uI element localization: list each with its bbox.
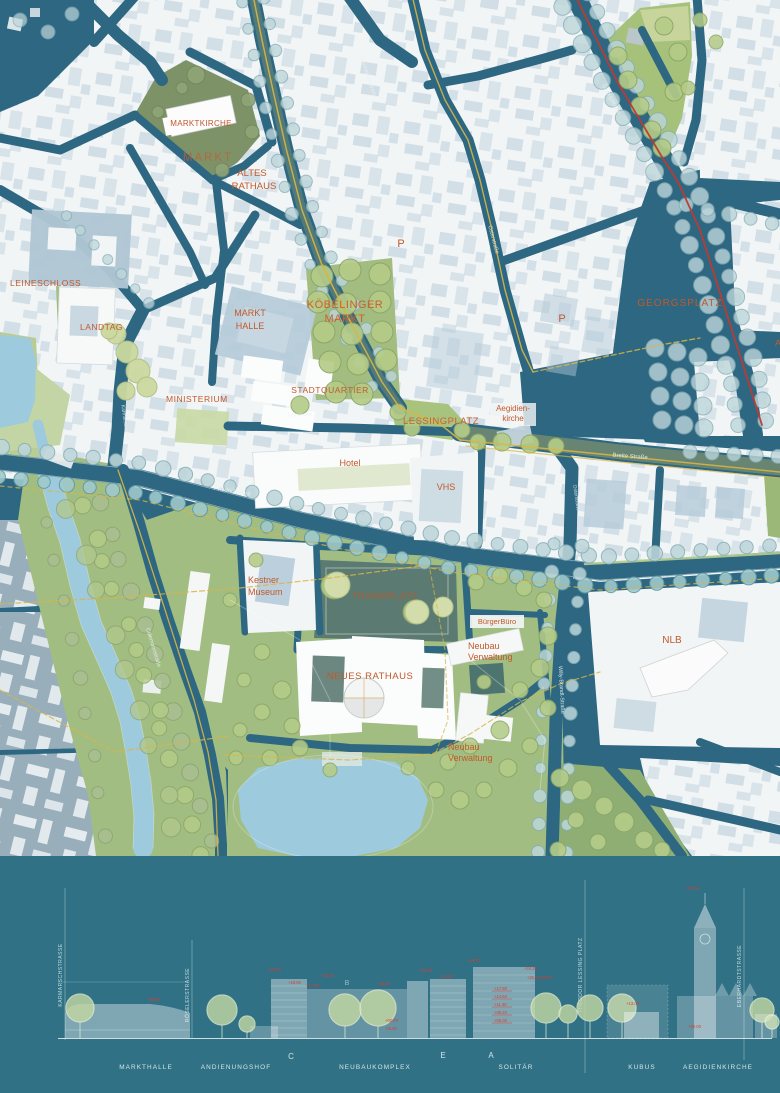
svg-text:HALLE: HALLE	[236, 321, 265, 331]
svg-text:+00.00: +00.00	[385, 1018, 399, 1023]
svg-text:LANDTAG: LANDTAG	[80, 322, 123, 332]
svg-text:LEINESCHLOSS: LEINESCHLOSS	[10, 278, 81, 288]
svg-text:NEUES RATHAUS: NEUES RATHAUS	[327, 671, 414, 682]
svg-text:Hotel: Hotel	[339, 458, 360, 468]
svg-text:+24.20: +24.20	[524, 966, 538, 971]
svg-text:MINISTERIUM: MINISTERIUM	[166, 394, 228, 404]
svg-text:+17.80: +17.80	[494, 986, 508, 991]
svg-text:A: A	[775, 338, 780, 348]
svg-text:KÖBELINGER: KÖBELINGER	[307, 299, 384, 311]
svg-text:+21.00: +21.00	[440, 974, 454, 979]
svg-text:C: C	[288, 1052, 294, 1061]
svg-text:+14.60: +14.60	[494, 994, 508, 999]
svg-text:B: B	[345, 980, 350, 987]
svg-text:VHS: VHS	[437, 482, 456, 492]
svg-text:+57.00: +57.00	[686, 886, 700, 891]
svg-text:AEGIDIENKIRCHE: AEGIDIENKIRCHE	[683, 1064, 753, 1071]
svg-text:NEUBAUKOMPLEX: NEUBAUKOMPLEX	[339, 1064, 411, 1071]
svg-text:KARMARSCHSTRASSE: KARMARSCHSTRASSE	[58, 943, 64, 1006]
svg-text:MARKTHALLE: MARKTHALLE	[119, 1064, 173, 1071]
svg-text:A: A	[488, 1051, 494, 1060]
svg-text:P: P	[558, 313, 565, 325]
svg-text:+22.00: +22.00	[321, 973, 335, 978]
svg-text:+00.00: +00.00	[688, 1024, 702, 1029]
svg-text:MARKTKIRCHE: MARKTKIRCHE	[170, 119, 232, 128]
svg-text:+18.80: +18.80	[288, 980, 302, 985]
svg-text:+21.00 OKFF: +21.00 OKFF	[527, 975, 553, 980]
svg-text:+05.00: +05.00	[494, 1018, 508, 1023]
svg-text:Verwaltung: Verwaltung	[448, 753, 493, 763]
svg-text:+13.00: +13.00	[626, 1001, 640, 1006]
svg-text:NLB: NLB	[662, 635, 682, 646]
svg-text:MARKT: MARKT	[234, 308, 266, 318]
svg-text:kirche: kirche	[502, 414, 524, 423]
svg-text:KUBUS: KUBUS	[628, 1064, 656, 1071]
svg-text:+18.80: +18.80	[377, 981, 391, 986]
svg-text:Verwaltung: Verwaltung	[468, 652, 513, 662]
svg-text:LESSINGPLATZ: LESSINGPLATZ	[403, 416, 479, 427]
svg-text:Aegidien-: Aegidien-	[496, 404, 530, 413]
svg-text:+08.20: +08.20	[494, 1010, 508, 1015]
svg-text:E: E	[440, 1051, 445, 1060]
svg-text:STADTQUARTIER: STADTQUARTIER	[291, 385, 369, 395]
svg-text:ALTES: ALTES	[237, 168, 266, 179]
svg-text:-03.00: -03.00	[385, 1026, 398, 1031]
svg-text:MARKT: MARKT	[325, 313, 366, 325]
svg-text:+22.00: +22.00	[419, 968, 433, 973]
svg-text:RATHAUS: RATHAUS	[232, 181, 277, 192]
svg-text:GEORGSPLATZ: GEORGSPLATZ	[637, 298, 722, 309]
svg-text:+11.40: +11.40	[494, 1002, 507, 1007]
svg-text:Neubau: Neubau	[468, 641, 500, 651]
svg-text:SOLITÄR: SOLITÄR	[498, 1063, 533, 1071]
svg-text:TRAMMPLATZ: TRAMMPLATZ	[352, 591, 417, 601]
svg-text:ANDIENUNGSHOF: ANDIENUNGSHOF	[201, 1064, 271, 1071]
svg-text:+23.50: +23.50	[268, 967, 282, 972]
svg-text:+26.70: +26.70	[467, 958, 481, 963]
svg-text:Museum: Museum	[248, 587, 283, 597]
svg-text:BürgerBüro: BürgerBüro	[478, 617, 516, 626]
svg-text:Kestner: Kestner	[248, 575, 279, 585]
svg-text:+17.80: +17.80	[306, 983, 320, 988]
svg-text:Leinstraße: Leinstraße	[288, 412, 312, 419]
svg-text:+09.80: +09.80	[147, 997, 161, 1002]
svg-text:MARKT: MARKT	[183, 152, 233, 164]
svg-text:P: P	[397, 238, 404, 250]
svg-text:Neubau: Neubau	[448, 742, 480, 752]
